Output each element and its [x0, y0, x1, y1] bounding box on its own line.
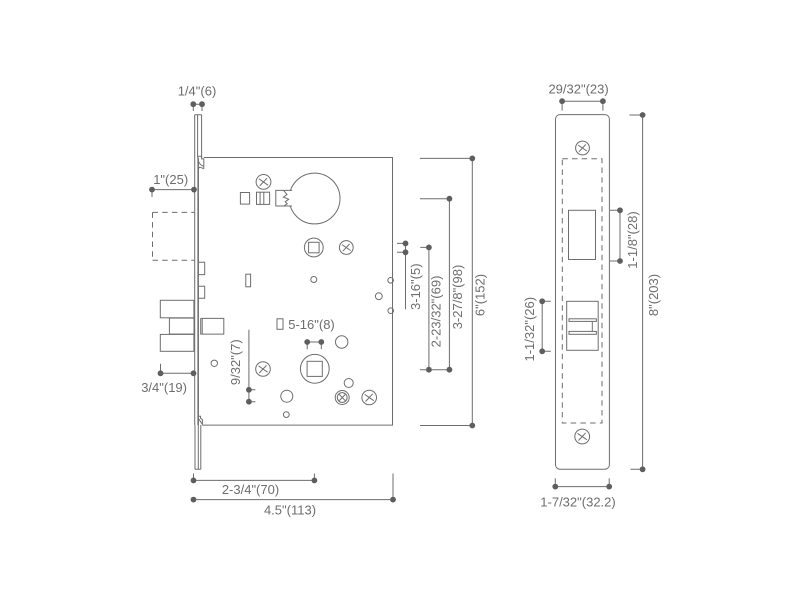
- svg-text:1-1/32"(26): 1-1/32"(26): [522, 297, 537, 362]
- svg-text:9/32"(7): 9/32"(7): [228, 339, 243, 385]
- svg-text:29/32"(23): 29/32"(23): [548, 82, 608, 97]
- svg-text:2-23/32"(69): 2-23/32"(69): [428, 276, 443, 348]
- svg-text:3/4"(19): 3/4"(19): [141, 380, 187, 395]
- svg-text:3-16"(5): 3-16"(5): [408, 263, 423, 310]
- svg-text:5-16"(8): 5-16"(8): [288, 317, 335, 332]
- svg-text:2-3/4"(70): 2-3/4"(70): [222, 482, 279, 497]
- svg-text:1-1/8"(28): 1-1/8"(28): [625, 211, 640, 268]
- svg-text:4.5"(113): 4.5"(113): [264, 503, 316, 518]
- svg-text:8"(203): 8"(203): [646, 274, 661, 316]
- svg-text:6"(152): 6"(152): [473, 274, 488, 316]
- svg-text:1-7/32"(32.2): 1-7/32"(32.2): [540, 495, 615, 510]
- svg-text:3-27/8"(98): 3-27/8"(98): [450, 265, 465, 330]
- svg-text:1/4"(6): 1/4"(6): [178, 84, 217, 99]
- svg-text:1"(25): 1"(25): [153, 172, 188, 187]
